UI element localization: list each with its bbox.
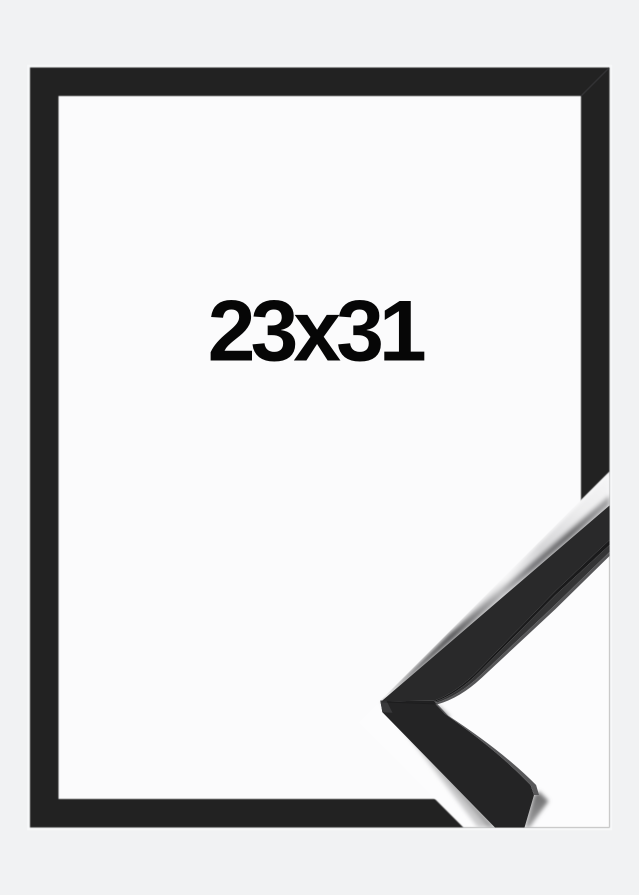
svg-text:23x31: 23x31: [208, 284, 425, 380]
